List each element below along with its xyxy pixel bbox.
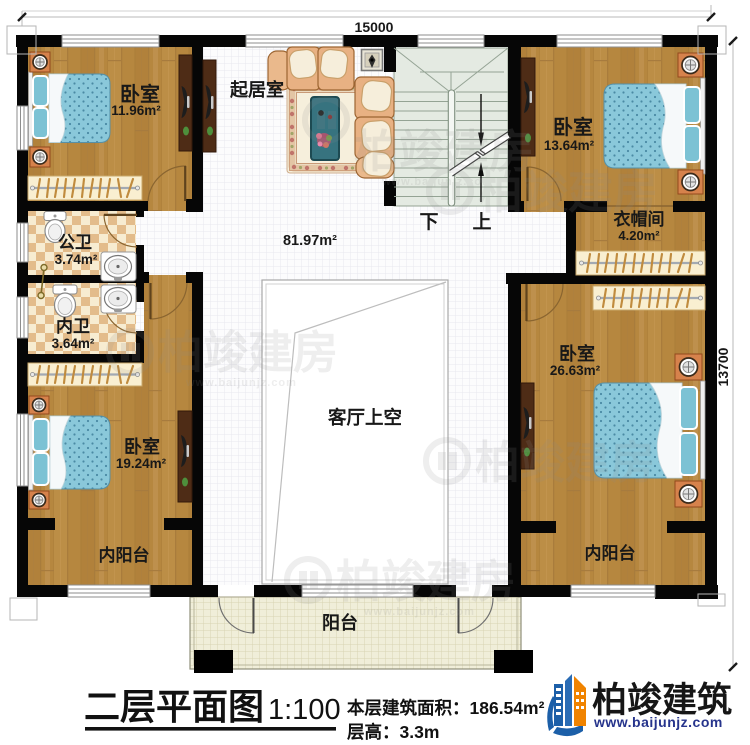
svg-text:3.64m²: 3.64m² bbox=[52, 336, 95, 351]
svg-text:26.63m²: 26.63m² bbox=[550, 363, 601, 378]
svg-text:内阳台: 内阳台 bbox=[585, 543, 636, 563]
svg-text:卧室: 卧室 bbox=[553, 115, 593, 139]
svg-text:www.baijunjz.com: www.baijunjz.com bbox=[593, 714, 723, 730]
svg-text:4.20m²: 4.20m² bbox=[618, 228, 660, 243]
svg-text:13700: 13700 bbox=[715, 347, 731, 386]
svg-text:11.96m²: 11.96m² bbox=[111, 103, 161, 118]
svg-text:柏竣建房: 柏竣建房 bbox=[475, 437, 655, 488]
svg-text:www.baijunjz.com: www.baijunjz.com bbox=[363, 606, 475, 618]
svg-text:19.24m²: 19.24m² bbox=[116, 456, 167, 471]
svg-text:柏竣建房: 柏竣建房 bbox=[158, 327, 338, 378]
svg-text:15000: 15000 bbox=[355, 19, 394, 35]
svg-text:内阳台: 内阳台 bbox=[99, 545, 150, 565]
svg-text:层高：3.3m: 层高：3.3m bbox=[347, 722, 439, 742]
svg-text:柏竣建房: 柏竣建房 bbox=[336, 556, 516, 607]
svg-text:www.baijunjz.com: www.baijunjz.com bbox=[185, 377, 297, 389]
svg-text:二层平面图: 二层平面图 bbox=[84, 686, 264, 727]
svg-text:阳台: 阳台 bbox=[322, 612, 358, 633]
svg-text:1:100: 1:100 bbox=[268, 694, 341, 726]
svg-text:81.97m²: 81.97m² bbox=[283, 233, 337, 249]
svg-text:下: 下 bbox=[419, 212, 438, 233]
svg-text:13.64m²: 13.64m² bbox=[544, 138, 595, 153]
svg-text:3.74m²: 3.74m² bbox=[55, 252, 98, 267]
svg-text:起居室: 起居室 bbox=[229, 79, 284, 100]
svg-text:衣帽间: 衣帽间 bbox=[614, 209, 665, 229]
svg-text:卧室: 卧室 bbox=[559, 343, 595, 364]
svg-text:内卫: 内卫 bbox=[56, 316, 90, 336]
svg-text:客厅上空: 客厅上空 bbox=[328, 407, 402, 428]
svg-text:本层建筑面积：186.54m²: 本层建筑面积：186.54m² bbox=[347, 698, 545, 718]
svg-text:卧室: 卧室 bbox=[124, 436, 160, 457]
svg-text:公卫: 公卫 bbox=[58, 233, 92, 252]
